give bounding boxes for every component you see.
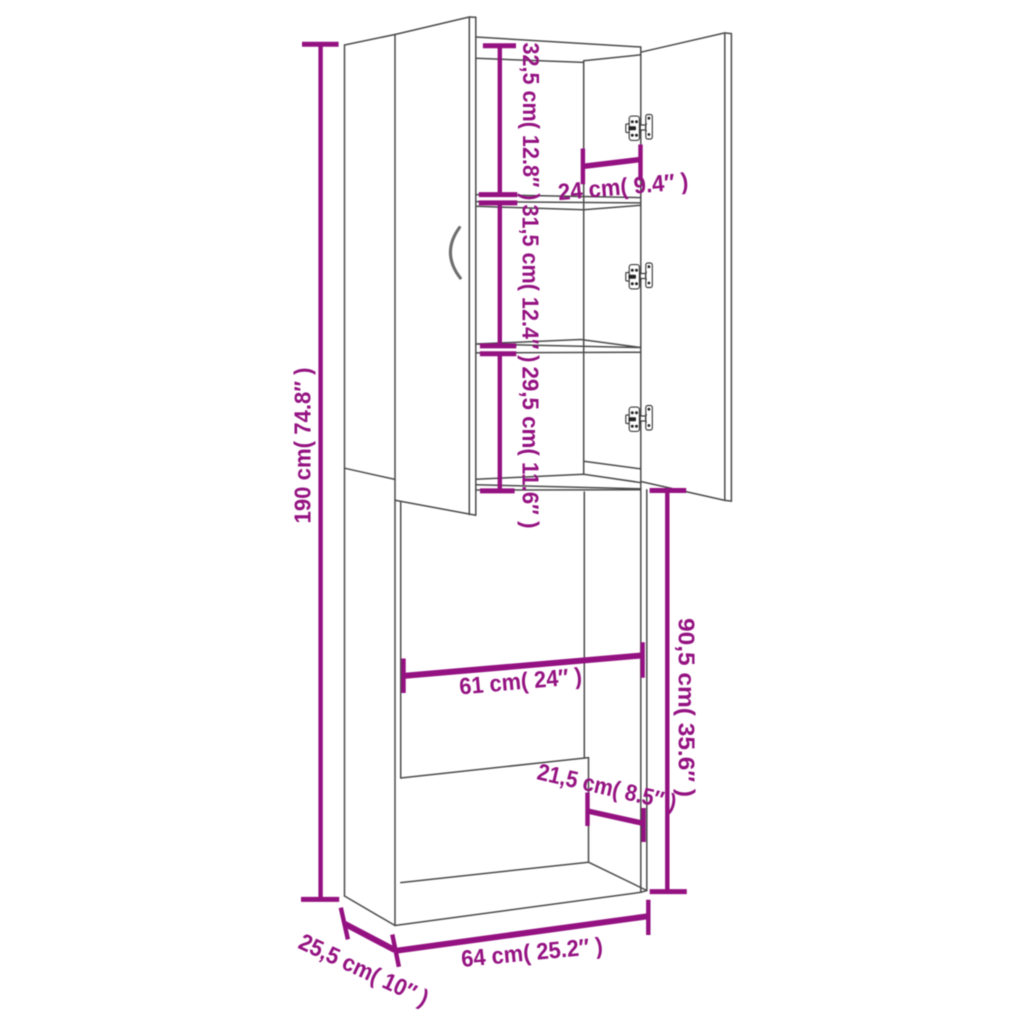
svg-text:32,5 cm( 12.8″ ): 32,5 cm( 12.8″ ) xyxy=(518,43,544,201)
svg-text:24 cm( 9.4″ ): 24 cm( 9.4″ ) xyxy=(557,168,689,205)
svg-text:25,5 cm( 10″ ): 25,5 cm( 10″ ) xyxy=(295,928,433,1011)
svg-text:31,5 cm( 12.4″ ): 31,5 cm( 12.4″ ) xyxy=(518,205,544,363)
svg-text:190 cm( 74.8″ ): 190 cm( 74.8″ ) xyxy=(290,368,316,524)
svg-text:29,5 cm( 11.6″ ): 29,5 cm( 11.6″ ) xyxy=(518,367,544,529)
svg-text:21,5 cm( 8.5″ ): 21,5 cm( 8.5″ ) xyxy=(535,759,679,816)
svg-text:90,5 cm( 35.6″ ): 90,5 cm( 35.6″ ) xyxy=(674,618,700,797)
